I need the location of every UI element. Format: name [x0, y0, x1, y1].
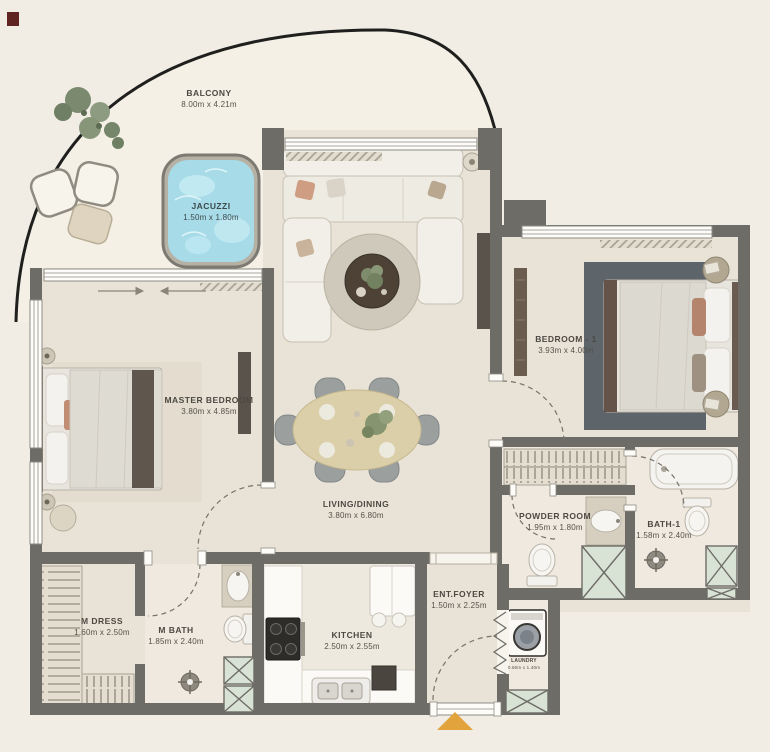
room-name: LAUNDRY — [511, 658, 537, 664]
room-label-bedroom-1: BEDROOM - 1 3.93m x 4.00m — [535, 333, 597, 357]
laundry-machine — [508, 610, 546, 656]
floor-plan-svg — [0, 0, 770, 752]
room-dims: 1.60m x 2.50m — [74, 627, 130, 639]
room-name: JACUZZI — [191, 201, 230, 211]
room-name: KITCHEN — [332, 630, 373, 640]
threshold-hatch-2 — [600, 240, 712, 248]
room-label-kitchen: KITCHEN 2.50m x 2.55m — [324, 629, 380, 653]
shaft-bath1-small — [707, 588, 736, 599]
room-name: M DRESS — [81, 616, 123, 626]
room-name: M BATH — [158, 625, 193, 635]
room-name: ENT.FOYER — [433, 589, 485, 599]
room-dims: 8.00m x 4.21m — [181, 99, 237, 111]
room-label-laundry: LAUNDRY 0.60m x 1.40m — [508, 658, 540, 672]
room-label-balcony: BALCONY 8.00m x 4.21m — [181, 87, 237, 111]
threshold-hatch-1 — [286, 152, 382, 161]
room-name: POWDER ROOM — [519, 511, 591, 521]
shaft-mbath-1 — [224, 657, 254, 684]
room-dims: 1.95m x 1.80m — [519, 522, 591, 534]
room-name: MASTER BEDROOM — [165, 395, 254, 405]
room-dims: 2.50m x 2.55m — [324, 641, 380, 653]
stove — [266, 618, 305, 660]
room-name: LIVING/DINING — [323, 499, 389, 509]
room-dims: 3.80m x 4.85m — [165, 406, 254, 418]
room-dims: 1.58m x 2.40m — [636, 530, 692, 542]
room-name: BEDROOM - 1 — [535, 334, 597, 344]
entrance-threshold — [435, 703, 497, 715]
balcony-chair-2 — [72, 160, 119, 207]
room-label-ent-foyer: ENT.FOYER 1.50m x 2.25m — [431, 588, 487, 612]
room-dims: 1.50m x 1.80m — [183, 212, 239, 224]
room-dims: 1.50m x 2.25m — [431, 600, 487, 612]
balcony-sliding-door — [44, 269, 262, 281]
master-armchair — [50, 505, 76, 531]
corner-marker — [7, 12, 19, 26]
room-dims: 3.93m x 4.00m — [535, 345, 597, 357]
shaft-hall — [582, 546, 626, 599]
room-label-m-bath: M BATH 1.85m x 2.40m — [148, 624, 204, 648]
room-name: BALCONY — [186, 88, 231, 98]
master-window-2 — [30, 462, 42, 544]
master-window-1 — [30, 300, 42, 448]
room-label-living-dining: LIVING/DINING 3.80m x 6.80m — [323, 498, 389, 522]
room-dims: 3.80m x 6.80m — [323, 510, 389, 522]
shaft-mbath-2 — [224, 686, 254, 712]
shaft-laundry — [506, 690, 548, 713]
tv-console — [477, 233, 490, 329]
room-name: BATH-1 — [647, 519, 680, 529]
room-label-master-bedroom: MASTER BEDROOM 3.80m x 4.85m — [165, 394, 254, 418]
corridor-wardrobe — [504, 449, 626, 485]
room-dims: 0.60m x 1.40m — [508, 665, 540, 672]
room-label-bath-1: BATH-1 1.58m x 2.40m — [636, 518, 692, 542]
room-label-powder-room: POWDER ROOM 1.95m x 1.80m — [519, 510, 591, 534]
floor-plan: BALCONY 8.00m x 4.21m JACUZZI 1.50m x 1.… — [0, 0, 770, 752]
threshold-hatch-3 — [200, 283, 262, 291]
kitchen-sink — [312, 678, 370, 704]
room-dims: 1.85m x 2.40m — [148, 636, 204, 648]
living-window — [285, 138, 477, 150]
shaft-bath1 — [706, 546, 737, 586]
room-label-jacuzzi: JACUZZI 1.50m x 1.80m — [183, 200, 239, 224]
living-rug-and-coffee-table — [324, 234, 420, 330]
room-label-m-dress: M DRESS 1.60m x 2.50m — [74, 615, 130, 639]
living-foyer-opening — [430, 553, 497, 564]
kitchen-appliance — [372, 666, 396, 690]
bedroom1-window — [522, 226, 712, 238]
master-dresser — [238, 352, 251, 434]
